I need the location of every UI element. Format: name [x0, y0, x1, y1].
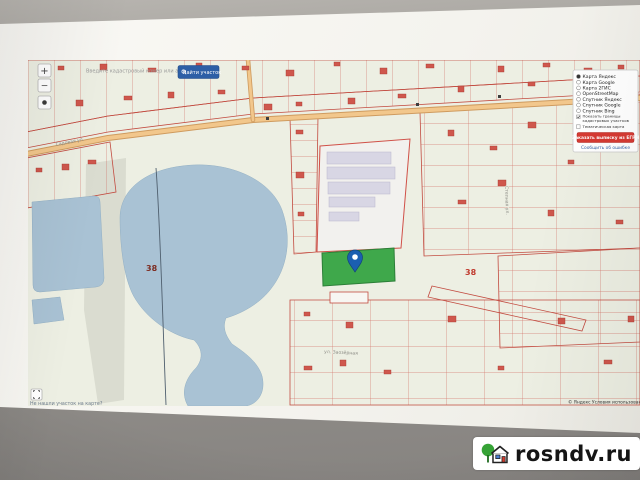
map-canvas[interactable]: 38 38 Садовая ул. ул. Заозёрная Степная …	[28, 60, 640, 406]
radio-layer-4[interactable]	[577, 97, 581, 101]
fullscreen-button[interactable]	[31, 389, 42, 400]
map-attribution[interactable]: © Яндекс Условия использования	[568, 399, 640, 406]
zoom-in-glyph: +	[40, 66, 48, 77]
pond-left	[32, 196, 104, 292]
radio-layer-5[interactable]	[577, 103, 581, 107]
search-hint[interactable]: Введите кадастровый номер или адрес	[86, 68, 191, 75]
radio-layer-6[interactable]	[577, 109, 581, 113]
radio-label-0[interactable]: Карта Яндекс	[583, 74, 617, 80]
quarter-number-left: 38	[146, 264, 158, 273]
radio-label-2[interactable]: Карта 2ГИС	[583, 86, 611, 92]
radio-layer-2[interactable]	[577, 86, 581, 90]
map-zoom-controls: + −	[38, 64, 51, 109]
radio-label-4[interactable]: Спутник Яндекс	[583, 97, 623, 103]
radio-layer-1[interactable]	[577, 80, 581, 84]
order-statement-label: Заказать выписку из ЕГРН	[572, 135, 639, 141]
radio-label-5[interactable]: Спутник Google	[583, 103, 621, 109]
not-found-link[interactable]: Не нашли участок на карте?	[30, 401, 103, 406]
pond-small	[32, 297, 64, 324]
house-tree-logo-icon	[481, 441, 509, 467]
checkbox-thematic-label[interactable]: Тематическая карта	[582, 124, 625, 129]
report-error-link[interactable]: Сообщить об ошибке	[581, 144, 630, 151]
site-watermark: rosndv.ru	[473, 437, 640, 470]
small-building-outline	[330, 292, 368, 303]
layers-panel: Карта Яндекс Карта Google Карта 2ГИС Ope…	[572, 70, 639, 152]
order-statement-button[interactable]: Заказать выписку из ЕГРН	[572, 133, 639, 143]
zoom-out-glyph: −	[41, 81, 49, 91]
cadastral-map[interactable]: 38 38 Садовая ул. ул. Заозёрная Степная …	[28, 60, 640, 406]
find-parcel-label: Найти участок	[183, 69, 222, 76]
radio-label-1[interactable]: Карта Google	[583, 80, 615, 86]
checkbox-borders-label-2: кадастровых участков	[583, 118, 630, 123]
building-complex-parcel	[317, 139, 410, 252]
radio-layer-0[interactable]	[577, 75, 581, 79]
radio-layer-3[interactable]	[577, 92, 581, 96]
paper-sheet: 38 38 Садовая ул. ул. Заозёрная Степная …	[0, 0, 640, 480]
radio-label-3[interactable]: OpenStreetMap	[583, 91, 619, 97]
checkbox-thematic[interactable]	[577, 125, 581, 129]
quarter-number-right: 38	[465, 268, 477, 277]
watermark-text: rosndv.ru	[515, 442, 632, 466]
street-label-right: Степная ул.	[503, 186, 510, 215]
photo-of-printed-map: 38 38 Садовая ул. ул. Заозёрная Степная …	[0, 0, 640, 480]
find-parcel-button[interactable]: Найти участок	[178, 66, 221, 79]
locate-icon	[42, 100, 47, 105]
